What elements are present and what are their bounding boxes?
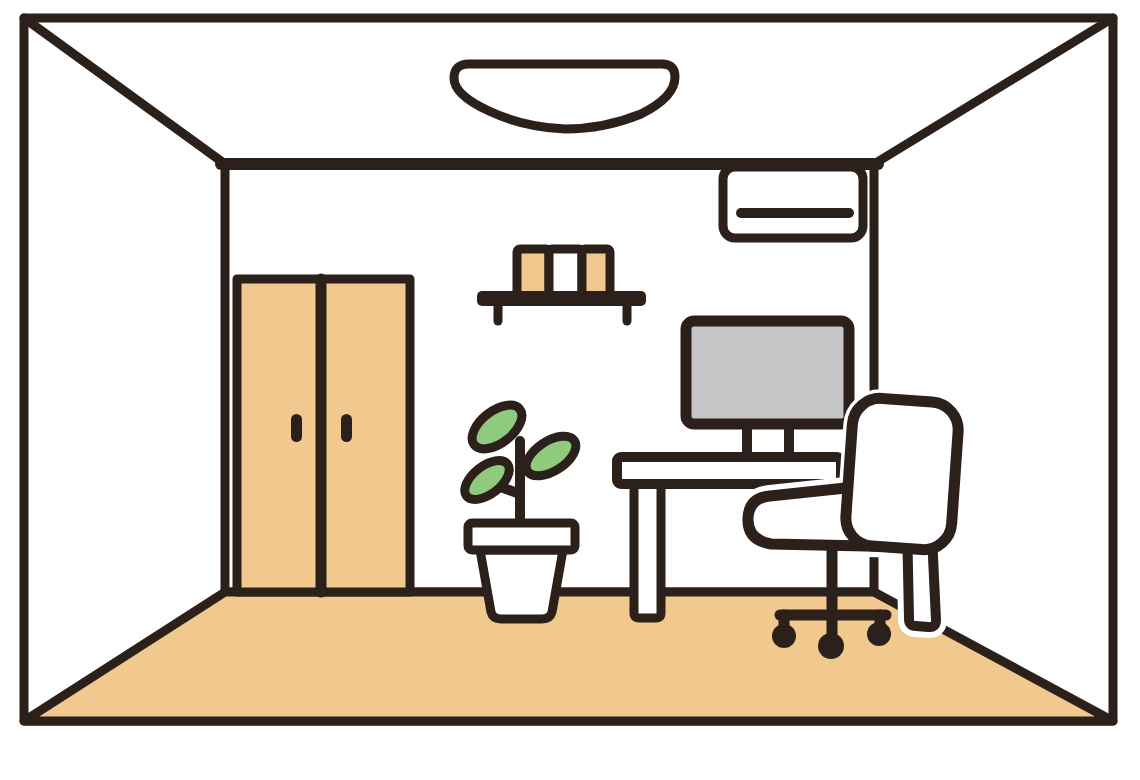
- closet-icon: [237, 279, 410, 592]
- chair-caster-left: [772, 624, 796, 648]
- book-middle: [549, 249, 582, 296]
- plant-pot-rim: [468, 523, 575, 550]
- monitor-screen: [686, 321, 849, 424]
- chair-caster-right: [867, 622, 891, 646]
- ceiling-edge-left: [24, 18, 225, 164]
- book-right: [582, 249, 610, 296]
- ceiling-light-icon: [454, 64, 675, 129]
- room-illustration-canvas: [0, 0, 1140, 780]
- ceiling-edge-right: [874, 18, 1113, 164]
- illustration-root: [24, 18, 1113, 721]
- book-left: [517, 249, 549, 296]
- air-conditioner-icon: [723, 167, 863, 238]
- chair-backrest: [844, 396, 960, 551]
- room-illustration: [0, 0, 1140, 780]
- desk-top: [617, 457, 841, 484]
- closet-handle-left: [291, 414, 302, 442]
- chair-caster-center: [818, 633, 844, 659]
- air-conditioner-body: [723, 167, 863, 238]
- desk-leg: [634, 484, 661, 618]
- plant-pot-body: [480, 550, 563, 619]
- floor: [24, 592, 1113, 721]
- closet-handle-right: [341, 414, 352, 442]
